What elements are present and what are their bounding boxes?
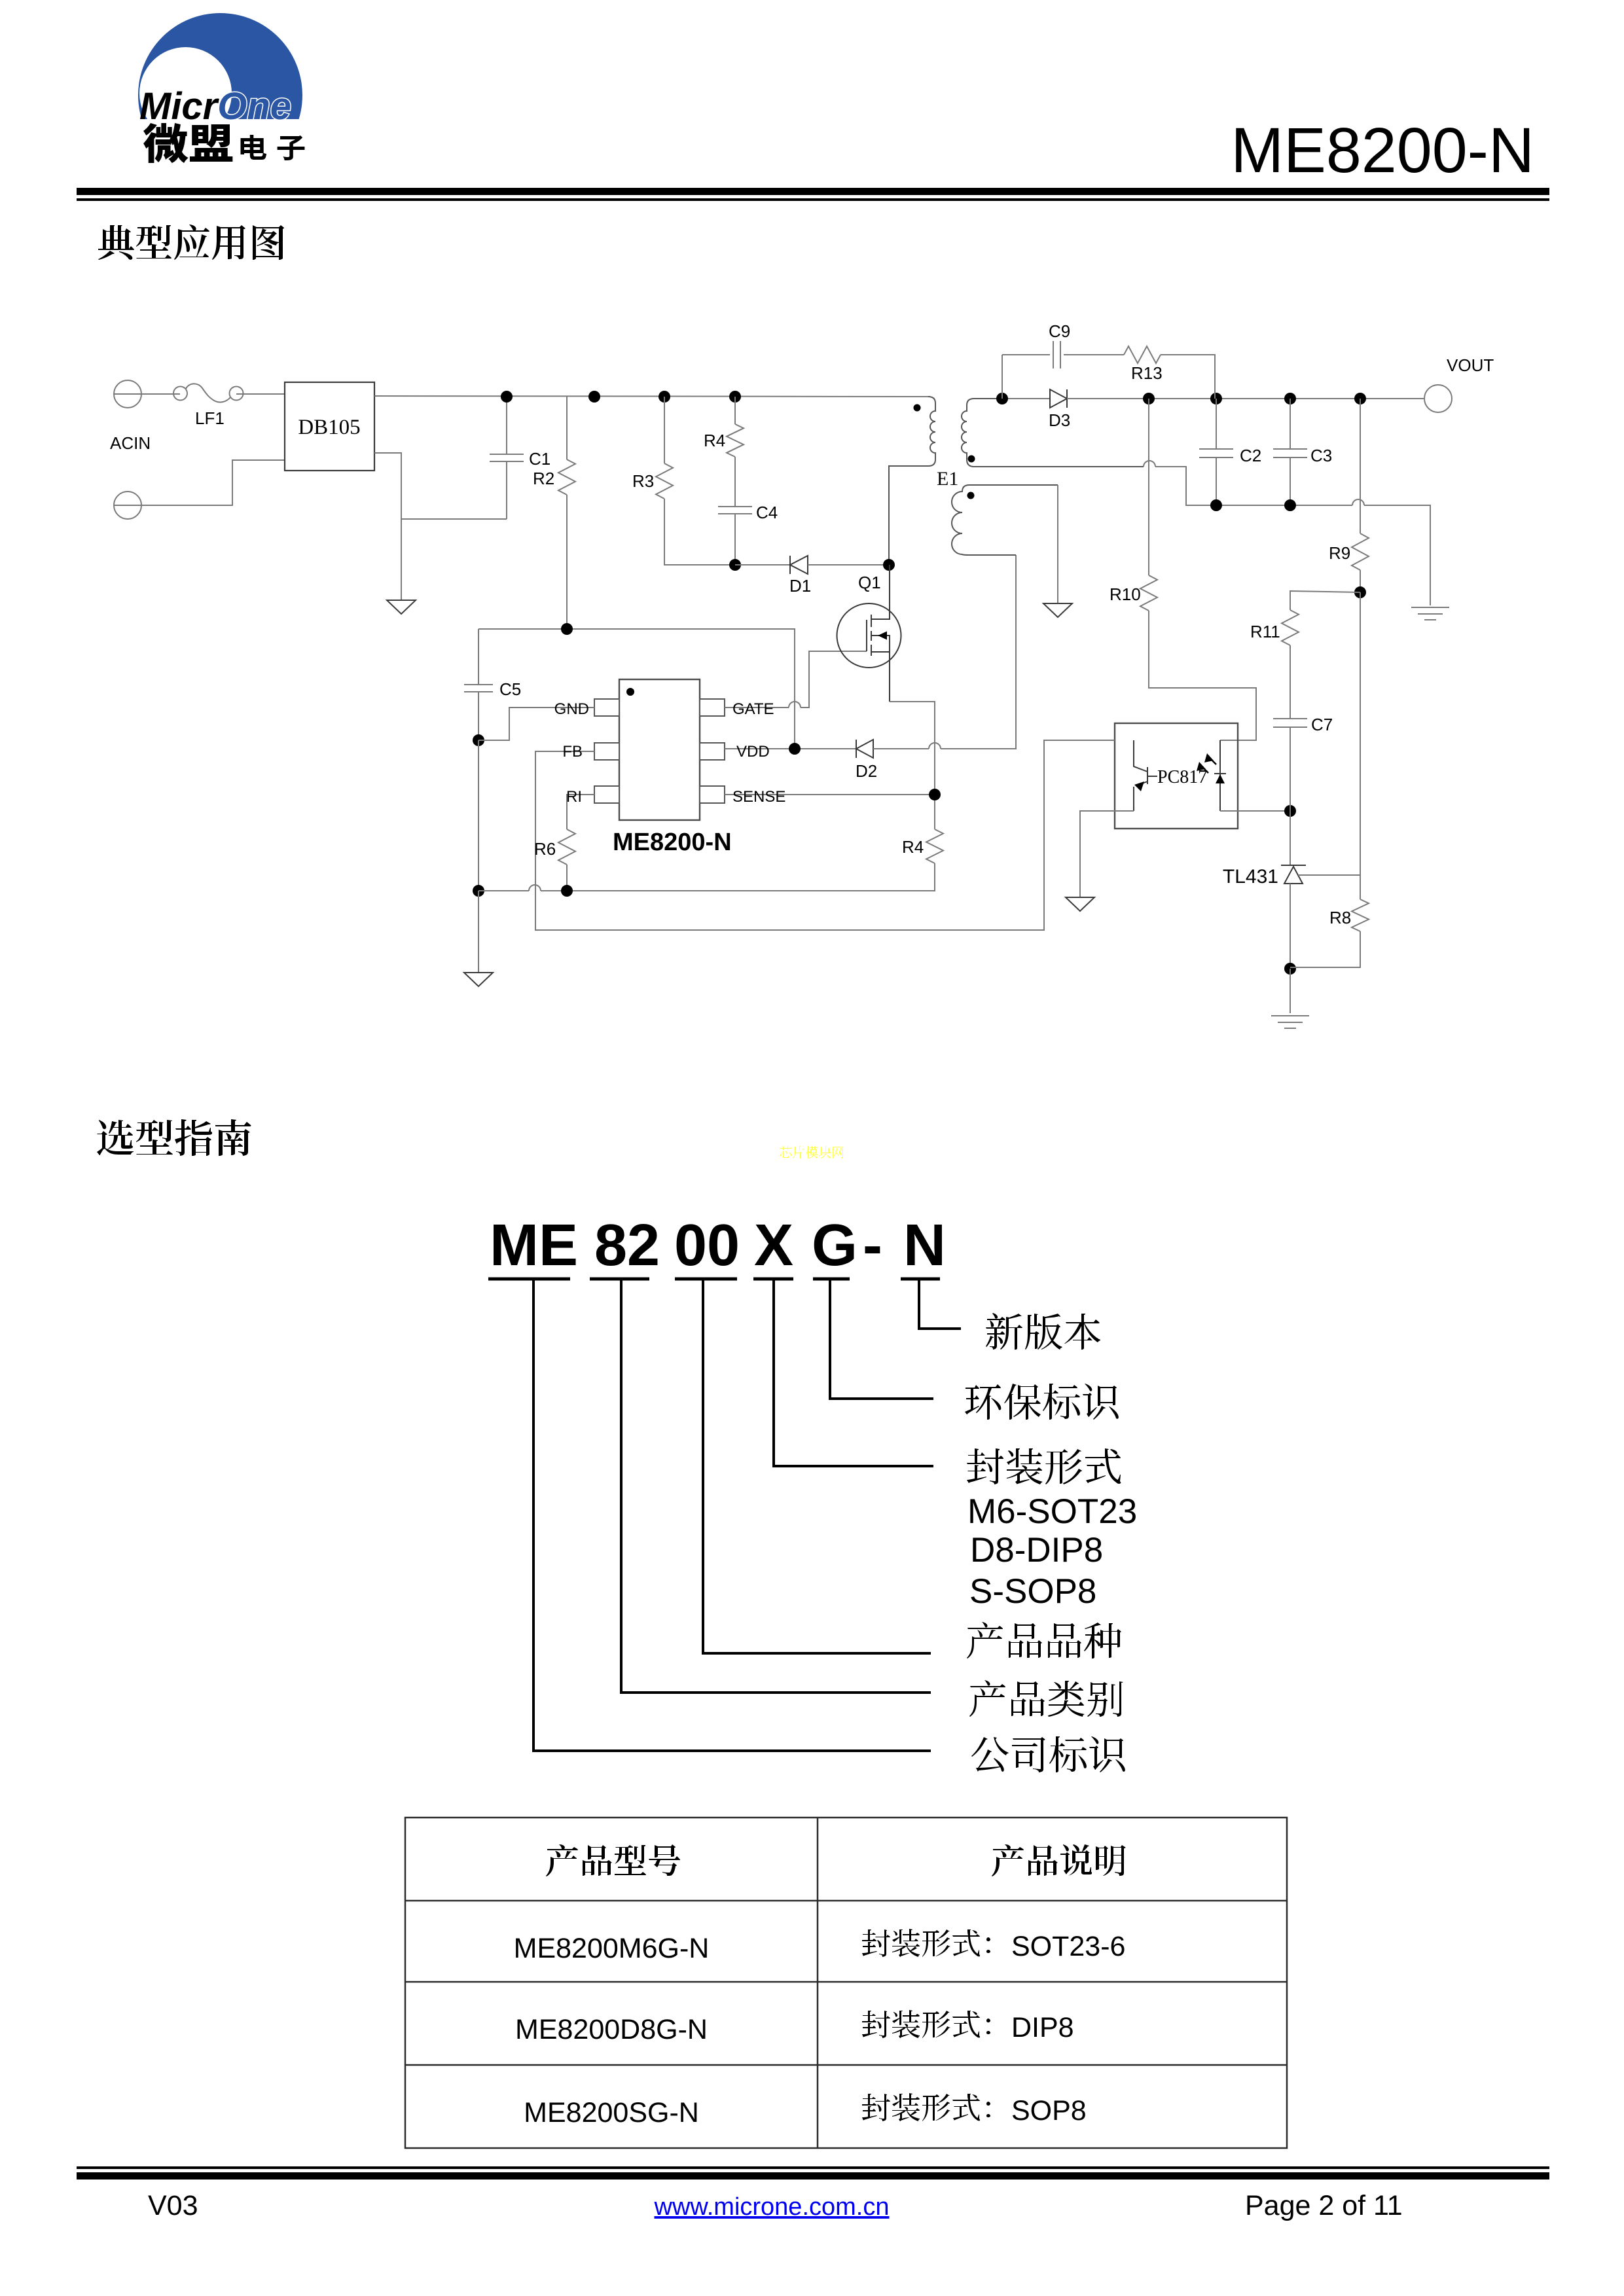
svg-text:SOT23-6: SOT23-6 <box>1011 1931 1125 1962</box>
svg-text:C5: C5 <box>499 679 521 699</box>
svg-text:R6: R6 <box>534 839 556 859</box>
svg-text:R13: R13 <box>1131 363 1163 383</box>
svg-text:R2: R2 <box>533 469 554 488</box>
svg-text:E1: E1 <box>937 468 958 490</box>
svg-text:ACIN: ACIN <box>110 433 151 453</box>
svg-text:D2: D2 <box>856 761 877 781</box>
svg-text:FB: FB <box>562 743 583 761</box>
svg-text:R10: R10 <box>1110 584 1141 604</box>
svg-text:VOUT: VOUT <box>1447 355 1494 375</box>
svg-text:D3: D3 <box>1049 410 1070 430</box>
svg-text:00: 00 <box>674 1213 740 1278</box>
svg-text:ME8200-N: ME8200-N <box>1231 115 1534 186</box>
svg-text:D1: D1 <box>789 576 811 596</box>
svg-text:TL431: TL431 <box>1223 866 1278 888</box>
svg-text:D8-DIP8: D8-DIP8 <box>970 1531 1103 1570</box>
svg-text:www.microne.com.cn: www.microne.com.cn <box>654 2193 890 2221</box>
svg-text:C7: C7 <box>1311 715 1333 734</box>
svg-text:R11: R11 <box>1250 622 1280 641</box>
svg-text:C9: C9 <box>1049 321 1070 341</box>
svg-text:C4: C4 <box>756 503 778 522</box>
svg-text:GATE: GATE <box>732 700 774 718</box>
svg-text:-: - <box>863 1213 882 1278</box>
svg-text:V03: V03 <box>148 2190 198 2221</box>
svg-text:C3: C3 <box>1310 446 1332 465</box>
svg-text:SENSE: SENSE <box>732 788 785 806</box>
svg-text:PC817: PC817 <box>1157 767 1207 787</box>
svg-text:ME8200-N: ME8200-N <box>613 829 732 856</box>
svg-text:MicrOne: MicrOne <box>139 85 291 128</box>
svg-text:S-SOP8: S-SOP8 <box>969 1572 1096 1611</box>
svg-text:R9: R9 <box>1329 543 1350 563</box>
svg-text:Page 2 of 11: Page 2 of 11 <box>1245 2190 1403 2221</box>
svg-text:RI: RI <box>566 788 582 806</box>
svg-text:C1: C1 <box>529 449 550 469</box>
svg-text:ME8200SG-N: ME8200SG-N <box>524 2097 699 2128</box>
svg-text:ME8200M6G-N: ME8200M6G-N <box>514 1933 710 1964</box>
svg-text:DB105: DB105 <box>298 416 360 439</box>
svg-text:R4: R4 <box>902 837 924 857</box>
svg-text:X: X <box>754 1213 793 1278</box>
svg-text:G: G <box>812 1213 857 1278</box>
svg-text:N: N <box>903 1213 946 1278</box>
svg-text:DIP8: DIP8 <box>1011 2012 1074 2043</box>
svg-text:LF1: LF1 <box>195 408 225 428</box>
svg-text:M6-SOT23: M6-SOT23 <box>967 1492 1137 1531</box>
svg-text:GND: GND <box>554 700 589 718</box>
svg-text:ME8200D8G-N: ME8200D8G-N <box>515 2014 708 2045</box>
svg-text:R3: R3 <box>632 471 654 491</box>
svg-text:VDD: VDD <box>736 743 770 761</box>
svg-text:ME: ME <box>490 1213 578 1278</box>
svg-text:R8: R8 <box>1329 908 1351 927</box>
svg-text:R4: R4 <box>704 431 725 450</box>
svg-text:82: 82 <box>594 1213 660 1278</box>
svg-text:Q1: Q1 <box>858 573 881 592</box>
svg-text:C2: C2 <box>1240 446 1261 465</box>
svg-text:SOP8: SOP8 <box>1011 2095 1087 2126</box>
